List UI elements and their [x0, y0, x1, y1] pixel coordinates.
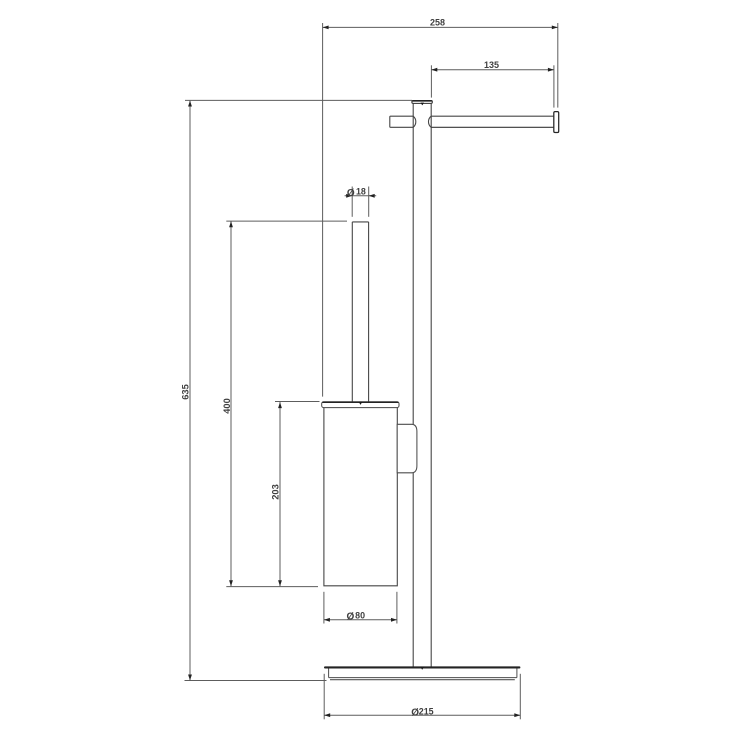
svg-text:80: 80 [355, 610, 365, 620]
svg-text:Ø: Ø [347, 188, 355, 199]
svg-text:258: 258 [430, 18, 445, 28]
svg-text:215: 215 [419, 707, 434, 717]
svg-text:135: 135 [484, 60, 499, 70]
svg-text:Ø: Ø [347, 611, 355, 622]
svg-text:203: 203 [270, 484, 280, 500]
svg-text:18: 18 [356, 187, 366, 197]
svg-text:635: 635 [181, 384, 191, 400]
svg-text:400: 400 [222, 398, 232, 414]
